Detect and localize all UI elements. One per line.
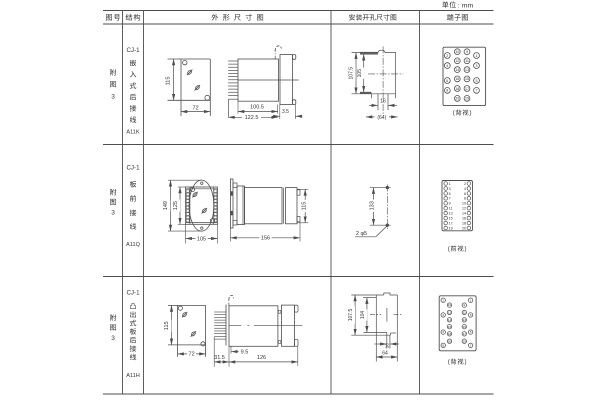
svg-text:107.5: 107.5 xyxy=(349,67,355,80)
svg-text:5: 5 xyxy=(449,192,451,196)
svg-text:CJ-1: CJ-1 xyxy=(126,164,140,171)
svg-text:(: ( xyxy=(453,111,455,117)
svg-text:10: 10 xyxy=(448,303,452,307)
svg-text:3: 3 xyxy=(470,313,472,317)
svg-text:72: 72 xyxy=(193,105,199,111)
svg-text:9: 9 xyxy=(463,303,465,307)
svg-text:15: 15 xyxy=(465,77,469,81)
svg-text:19: 19 xyxy=(449,226,453,230)
svg-text:3: 3 xyxy=(111,335,115,342)
svg-text:19: 19 xyxy=(465,97,469,101)
svg-text:64: 64 xyxy=(382,351,388,357)
svg-text:115: 115 xyxy=(166,77,172,86)
svg-text:4: 4 xyxy=(442,313,444,317)
svg-text:17: 17 xyxy=(449,221,453,225)
svg-text:13: 13 xyxy=(465,68,469,72)
svg-text:16: 16 xyxy=(448,325,452,329)
svg-text:7: 7 xyxy=(470,343,472,347)
svg-text:15: 15 xyxy=(449,216,453,220)
svg-text:): ) xyxy=(465,247,467,253)
svg-text:2: 2 xyxy=(446,54,448,58)
svg-text:9: 9 xyxy=(449,202,451,206)
svg-text:4: 4 xyxy=(464,187,466,191)
svg-text:18: 18 xyxy=(462,221,466,225)
svg-text:2: 2 xyxy=(442,298,444,302)
svg-text:6: 6 xyxy=(446,79,448,83)
svg-text:12: 12 xyxy=(448,311,452,315)
svg-text:mm: mm xyxy=(462,3,474,10)
svg-text:18: 18 xyxy=(455,87,459,91)
svg-text:133: 133 xyxy=(370,201,376,210)
svg-text:3: 3 xyxy=(476,64,478,68)
svg-text:12: 12 xyxy=(455,59,459,63)
svg-text:3.5: 3.5 xyxy=(282,109,289,115)
svg-text:100.5: 100.5 xyxy=(250,105,264,111)
svg-text:13: 13 xyxy=(463,318,467,322)
svg-text:A11Q: A11Q xyxy=(126,242,141,248)
svg-text:2 φ5: 2 φ5 xyxy=(356,231,367,237)
svg-text:125: 125 xyxy=(173,201,179,210)
svg-text:104: 104 xyxy=(360,311,366,320)
svg-text:12: 12 xyxy=(462,207,466,211)
svg-text:11: 11 xyxy=(449,207,453,211)
svg-text:7: 7 xyxy=(476,89,478,93)
svg-text:(: ( xyxy=(448,247,450,253)
svg-text:3: 3 xyxy=(111,210,115,217)
svg-text:6: 6 xyxy=(464,192,466,196)
svg-text:15: 15 xyxy=(463,325,467,329)
svg-text:17: 17 xyxy=(463,332,467,336)
svg-text:20: 20 xyxy=(448,339,452,343)
svg-text:(64): (64) xyxy=(377,115,386,121)
svg-text:8: 8 xyxy=(464,197,466,201)
svg-text:5: 5 xyxy=(476,79,478,83)
svg-text:16: 16 xyxy=(455,77,459,81)
svg-text:8: 8 xyxy=(446,89,448,93)
svg-text:4: 4 xyxy=(446,64,448,68)
svg-text:9: 9 xyxy=(466,50,468,54)
svg-text:105: 105 xyxy=(357,69,363,78)
svg-text:14: 14 xyxy=(455,68,459,72)
svg-text:CJ-1: CJ-1 xyxy=(126,47,140,54)
svg-text:122.5: 122.5 xyxy=(245,115,259,121)
svg-text:1: 1 xyxy=(476,54,478,58)
svg-text:115: 115 xyxy=(164,321,170,330)
svg-text:17: 17 xyxy=(465,87,469,91)
svg-text:105: 105 xyxy=(197,236,206,242)
svg-text::: : xyxy=(458,2,460,9)
svg-text:14: 14 xyxy=(462,212,466,216)
svg-text:13: 13 xyxy=(449,212,453,216)
svg-text:11: 11 xyxy=(465,59,469,63)
svg-text:10: 10 xyxy=(455,50,459,54)
svg-text:20: 20 xyxy=(455,97,459,101)
svg-text:16: 16 xyxy=(384,343,389,348)
svg-text:126: 126 xyxy=(257,355,266,361)
svg-text:A11H: A11H xyxy=(126,373,140,379)
svg-text:156: 156 xyxy=(261,236,270,242)
svg-text:115: 115 xyxy=(301,202,307,211)
svg-text:3: 3 xyxy=(449,187,451,191)
svg-text:): ) xyxy=(465,360,467,366)
svg-text:A11K: A11K xyxy=(126,129,140,135)
svg-text:7: 7 xyxy=(449,197,451,201)
svg-text:14: 14 xyxy=(448,318,452,322)
svg-text:9.5: 9.5 xyxy=(241,350,249,356)
svg-text:20: 20 xyxy=(462,226,466,230)
svg-text:149: 149 xyxy=(163,201,169,210)
svg-text:16: 16 xyxy=(380,99,386,105)
svg-text:11: 11 xyxy=(463,311,466,315)
svg-text:3: 3 xyxy=(111,94,115,101)
svg-text:107.5: 107.5 xyxy=(348,309,354,322)
svg-text:8: 8 xyxy=(442,343,444,347)
svg-text:16: 16 xyxy=(462,216,466,220)
svg-text:6: 6 xyxy=(442,330,444,334)
svg-text:1: 1 xyxy=(470,298,472,302)
svg-text:31.5: 31.5 xyxy=(214,355,225,361)
svg-text:5: 5 xyxy=(470,330,472,334)
svg-text:1: 1 xyxy=(449,182,451,186)
svg-text:72: 72 xyxy=(189,352,195,358)
svg-text:18: 18 xyxy=(448,332,452,336)
svg-text:10: 10 xyxy=(462,202,466,206)
svg-text:(: ( xyxy=(448,360,450,366)
svg-text:): ) xyxy=(470,111,472,117)
svg-text:2: 2 xyxy=(464,182,466,186)
svg-text:19: 19 xyxy=(463,339,467,343)
svg-text:CJ-1: CJ-1 xyxy=(126,290,140,297)
